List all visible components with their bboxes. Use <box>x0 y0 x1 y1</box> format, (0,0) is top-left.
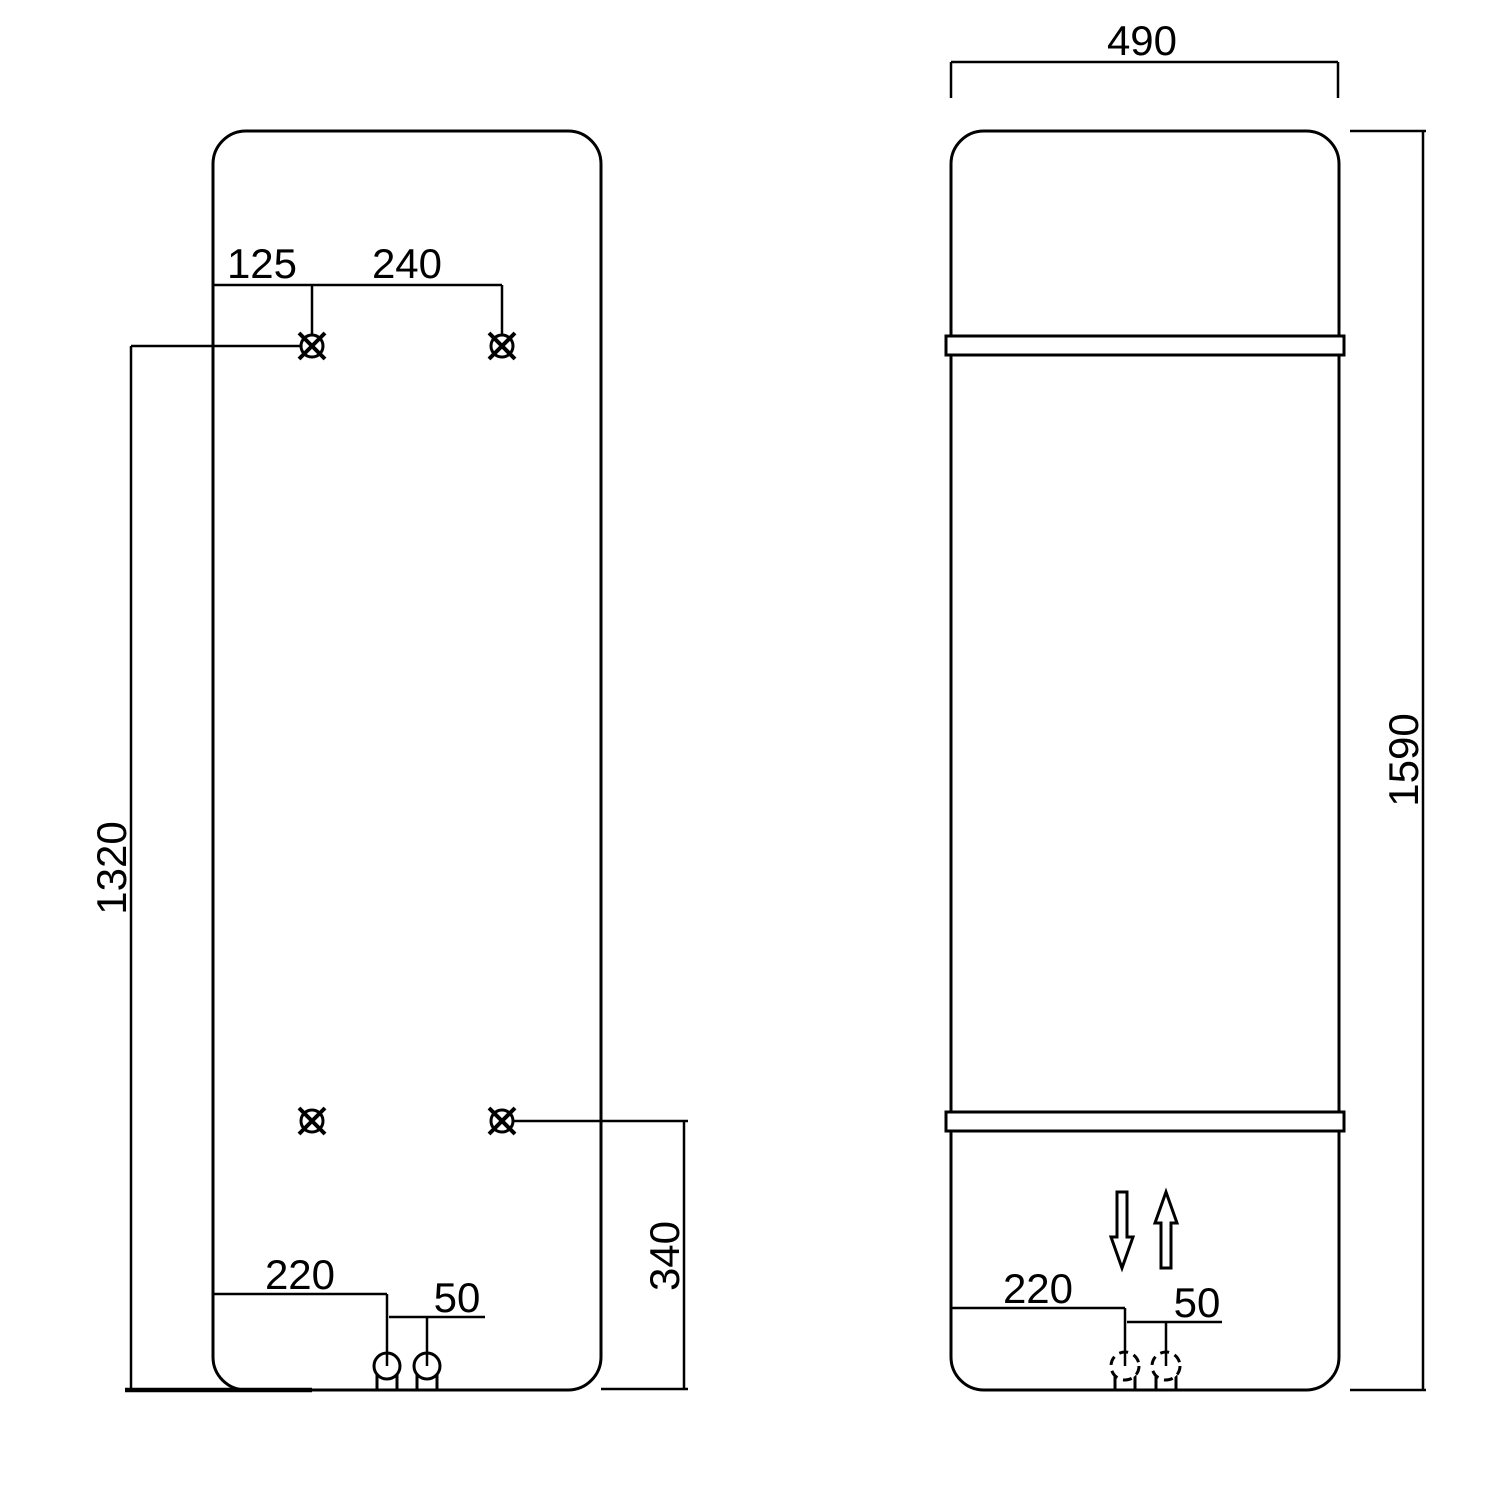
towel-bar-bottom <box>946 1112 1344 1131</box>
rear-view: 125 240 1320 340 <box>88 131 688 1390</box>
dim-label-50: 50 <box>434 1274 481 1321</box>
dim-label-490: 490 <box>1107 17 1177 64</box>
dim-label-1590: 1590 <box>1380 713 1427 806</box>
dim-label-340: 340 <box>641 1221 688 1291</box>
dim-label-50: 50 <box>1174 1279 1221 1326</box>
towel-bar-top <box>946 336 1344 355</box>
front-panel-outline <box>951 131 1339 1390</box>
flow-down-arrow-icon <box>1111 1192 1133 1268</box>
rear-panel-outline <box>213 131 601 1390</box>
dim-label-1320: 1320 <box>88 821 135 914</box>
flow-up-arrow-icon <box>1155 1192 1177 1268</box>
bracket-mark-top-left <box>299 333 325 359</box>
dim-label-220: 220 <box>265 1251 335 1298</box>
dim-label-125: 125 <box>227 240 297 287</box>
dim-label-240: 240 <box>372 240 442 287</box>
radiator-dimension-drawing: 125 240 1320 340 <box>0 0 1500 1500</box>
technical-drawing-canvas: 125 240 1320 340 <box>0 0 1500 1500</box>
bracket-mark-bottom-right <box>489 1108 515 1134</box>
bracket-mark-top-right <box>489 333 515 359</box>
dim-label-220: 220 <box>1003 1265 1073 1312</box>
bracket-mark-bottom-left <box>299 1108 325 1134</box>
front-view: 490 1590 220 50 <box>946 17 1427 1390</box>
